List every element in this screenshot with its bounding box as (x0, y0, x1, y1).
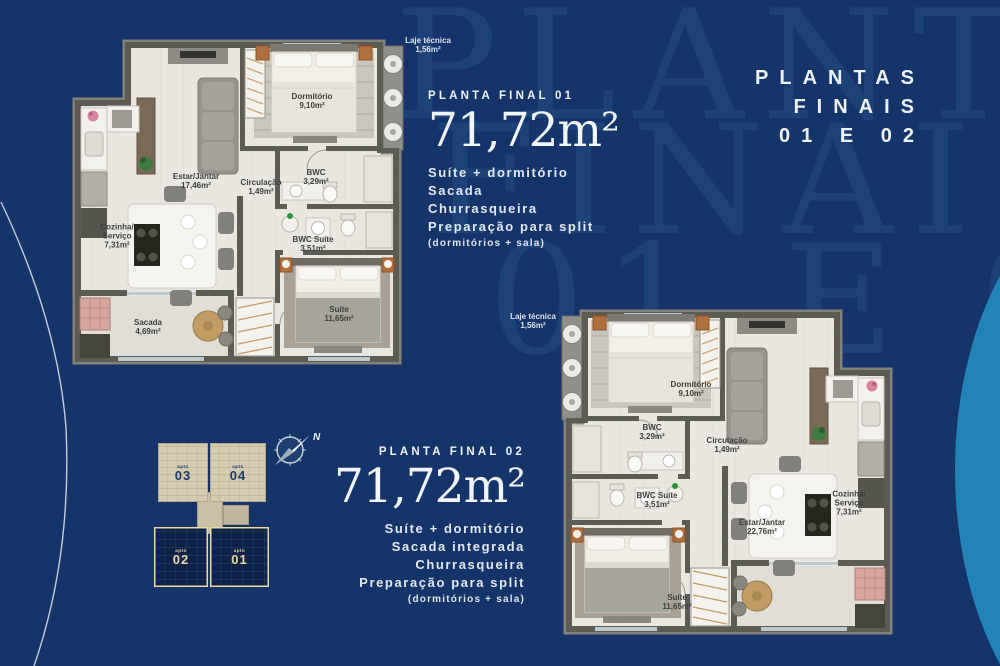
room-label-dormitorio-1: Dormitório 9,10m² (292, 92, 333, 110)
room-name: Cozinha/ (100, 223, 133, 232)
room-area: 1,56m² (510, 321, 556, 330)
plan1-heading: PLANTA FINAL 01 (428, 90, 619, 102)
room-area: 17,46m² (173, 181, 219, 190)
floor-plan-1-drawing (75, 42, 403, 362)
plan1-features: Suíte + dormitório Sacada Churrasqueira … (428, 164, 619, 249)
feature-item: Sacada (428, 182, 619, 200)
feature-item: Suíte + dormitório (334, 520, 525, 538)
room-name: Serviço (832, 499, 865, 508)
poster: PLANTAS FINAIS 01 E 02 Laje técnica 1,56… (0, 0, 1000, 666)
key-plan-hall (223, 505, 249, 525)
room-name: Dormitório (292, 92, 333, 101)
key-plan-unit-01: apto 01 (210, 527, 269, 587)
room-name: BWC (306, 168, 325, 177)
page-title: PLANTAS FINAIS 01 E 02 (755, 64, 914, 151)
feature-item: Preparação para split (428, 218, 619, 236)
feature-item: Churrasqueira (428, 200, 619, 218)
plan2-heading: PLANTA FINAL 02 (334, 446, 525, 458)
room-name: BWC (642, 423, 661, 432)
room-area: 1,56m² (405, 45, 451, 54)
room-name: Circulação (707, 436, 748, 445)
room-area: 3,29m² (639, 432, 664, 441)
room-area: 9,10m² (292, 101, 333, 110)
room-area: 3,51m² (293, 244, 334, 253)
feature-item: Preparação para split (334, 574, 525, 592)
feature-item: Suíte + dormitório (428, 164, 619, 182)
compass-icon: N (270, 426, 324, 472)
room-name: BWC Suíte (637, 491, 678, 500)
room-label-estar-jantar-2: Estar/Jantar 22,76m² (739, 518, 785, 536)
floor-plan-2 (561, 306, 897, 638)
room-name: Laje técnica (510, 312, 556, 321)
unit-number: 02 (173, 553, 189, 566)
room-area: 22,76m² (739, 527, 785, 536)
room-label-bwc-1: BWC 3,29m² (303, 168, 328, 186)
room-name: Laje técnica (405, 36, 451, 45)
plan1-features-note: (dormitórios + sala) (428, 238, 619, 249)
room-label-circulacao-2: Circulação 1,49m² (707, 436, 748, 454)
room-area: 11,65m² (662, 602, 691, 611)
plan2-area: 71,72m² (334, 460, 525, 514)
key-plan-unit-03: apto 03 (158, 443, 208, 502)
room-label-bwc-2: BWC 3,29m² (639, 423, 664, 441)
room-name: Sacada (134, 318, 162, 327)
room-area: 1,49m² (707, 445, 748, 454)
room-label-cozinha-2: Cozinha/ Serviço 7,31m² (832, 490, 865, 517)
room-label-suite-2: Suíte 11,65m² (662, 593, 691, 611)
plan1-text-block: PLANTA FINAL 01 71,72m² Suíte + dormitór… (428, 90, 619, 249)
room-area: 1,49m² (241, 187, 282, 196)
room-name: Serviço (100, 232, 133, 241)
room-area: 3,29m² (303, 177, 328, 186)
room-area: 11,65m² (324, 314, 353, 323)
room-label-bwc-suite-2: BWC Suíte 3,51m² (637, 491, 678, 509)
plan1-area: 71,72m² (428, 104, 619, 158)
room-name: Cozinha/ (832, 490, 865, 499)
floor-plan-2-drawing (562, 312, 890, 632)
title-line: PLANTAS (755, 64, 925, 93)
room-name: BWC Suíte (293, 235, 334, 244)
room-area: 7,31m² (100, 241, 133, 250)
plan2-text-block: PLANTA FINAL 02 71,72m² Suíte + dormitór… (334, 446, 525, 605)
room-name: Dormitório (671, 380, 712, 389)
feature-item: Sacada integrada (334, 538, 525, 556)
room-label-sacada-1: Sacada 4,69m² (134, 318, 162, 336)
room-label-bwc-suite-1: BWC Suíte 3,51m² (293, 235, 334, 253)
curve-line (1, 202, 67, 666)
room-label-circulacao-1: Circulação 1,49m² (241, 178, 282, 196)
unit-number: 03 (175, 469, 191, 482)
room-label-cozinha-1: Cozinha/ Serviço 7,31m² (100, 223, 133, 250)
room-label-estar-jantar-1: Estar/Jantar 17,46m² (173, 172, 219, 190)
room-area: 9,10m² (671, 389, 712, 398)
room-area: 7,31m² (832, 508, 865, 517)
compass-north-label: N (313, 432, 321, 443)
room-label-dormitorio-2: Dormitório 9,10m² (671, 380, 712, 398)
key-plan: apto 03 apto 04 apto 02 apto 01 (150, 438, 282, 593)
room-name: Suíte (329, 305, 349, 314)
room-area: 3,51m² (637, 500, 678, 509)
room-label-laje-tecnica-2: Laje técnica 1,56m² (510, 312, 556, 330)
title-line: 01 E 02 (755, 122, 925, 151)
title-line: FINAIS (755, 93, 925, 122)
room-name: Circulação (241, 178, 282, 187)
room-label-laje-tecnica-1: Laje técnica 1,56m² (405, 36, 451, 54)
room-name: Estar/Jantar (739, 518, 785, 527)
key-plan-unit-02: apto 02 (154, 527, 208, 587)
room-label-suite-1: Suíte 11,65m² (324, 305, 353, 323)
unit-number: 01 (231, 553, 247, 566)
room-name: Estar/Jantar (173, 172, 219, 181)
room-area: 4,69m² (134, 327, 162, 336)
unit-number: 04 (230, 469, 246, 482)
key-plan-unit-04: apto 04 (210, 443, 266, 502)
plan2-features-note: (dormitórios + sala) (334, 594, 525, 605)
feature-item: Churrasqueira (334, 556, 525, 574)
plan2-features: Suíte + dormitório Sacada integrada Chur… (334, 520, 525, 605)
room-name: Suíte (667, 593, 687, 602)
